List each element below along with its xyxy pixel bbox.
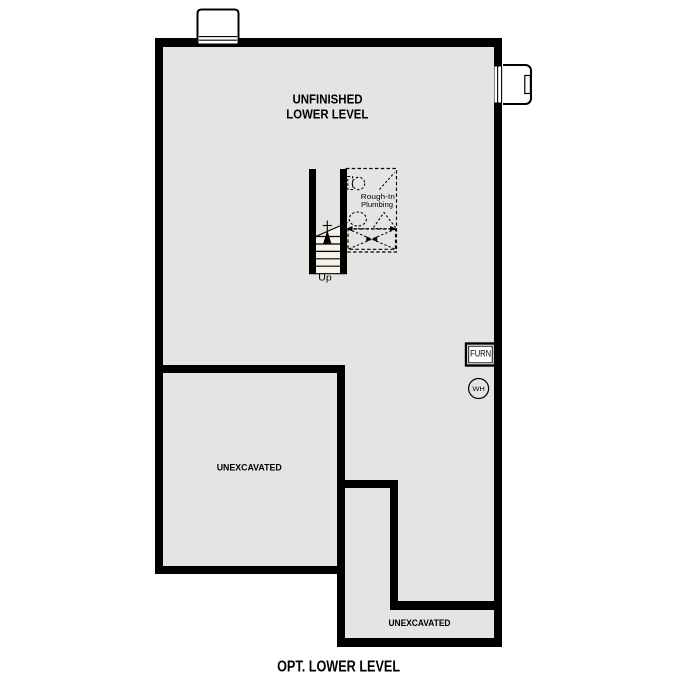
wall-bottom-right-horizontal (390, 601, 502, 610)
wall-bottom (337, 638, 502, 647)
fireplace-firebox (525, 76, 531, 94)
main-room-label-line2: LOWER LEVEL (286, 108, 368, 122)
unexcavated-bottom-label: UNEXCAVATED (389, 618, 451, 628)
furnace-label: FURN (470, 349, 491, 359)
plumbing-label-line2: Plumbing (361, 200, 393, 209)
wall-notch-vertical (390, 480, 398, 610)
floor-plan: Up Rough-In Plumbing FURN WH UNFINISHED … (0, 0, 687, 687)
wall-left (155, 38, 163, 574)
wall-notch-top (337, 480, 398, 488)
water-heater-label: WH (472, 386, 485, 393)
floor-areas (163, 47, 494, 638)
unexcavated-left-label: UNEXCAVATED (217, 463, 282, 473)
chimney (198, 10, 239, 44)
furnace: FURN (466, 344, 495, 366)
chimney-body (198, 10, 239, 44)
up-label: Up (318, 273, 332, 283)
wall-unexcavated-top (155, 365, 345, 373)
plan-title: OPT. LOWER LEVEL (277, 658, 400, 675)
fireplace (495, 65, 532, 104)
wall-unexcavated-bottom (155, 566, 345, 574)
wall-interior-vertical (337, 365, 345, 647)
stair-wall-left (309, 169, 316, 274)
main-room-label-line1: UNFINISHED (293, 93, 363, 107)
